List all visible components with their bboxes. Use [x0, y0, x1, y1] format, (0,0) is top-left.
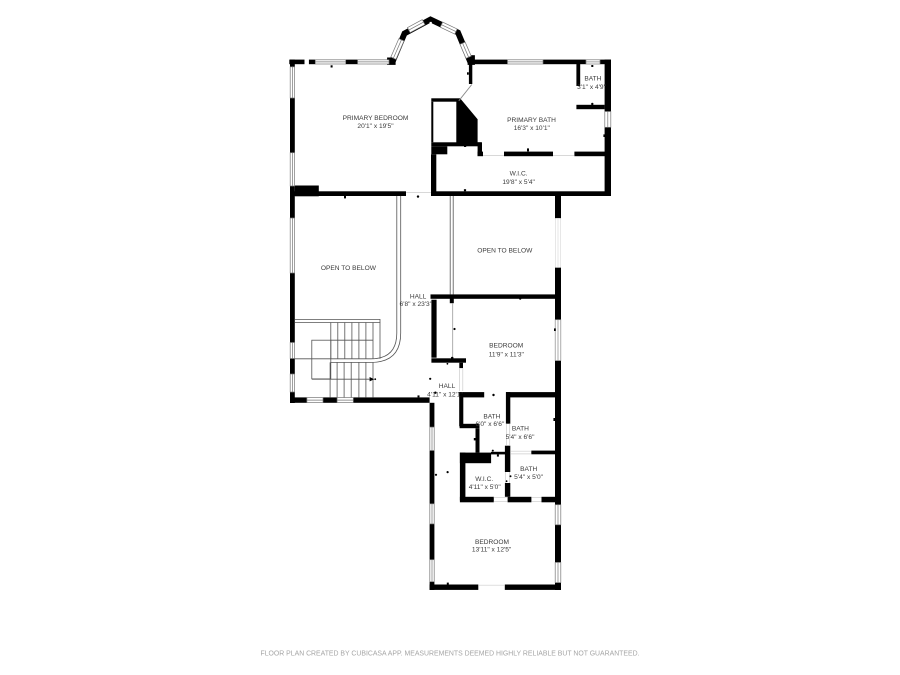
svg-text:6'8" x 23'3": 6'8" x 23'3" [400, 301, 433, 308]
svg-text:20'1" x 19'5": 20'1" x 19'5" [357, 123, 394, 130]
svg-text:PRIMARY BEDROOM: PRIMARY BEDROOM [343, 115, 409, 122]
svg-text:19'8" x 5'4": 19'8" x 5'4" [502, 179, 535, 186]
svg-text:4'11" x 5'0": 4'11" x 5'0" [469, 484, 502, 491]
svg-text:OPEN TO BELOW: OPEN TO BELOW [321, 265, 377, 272]
svg-text:HALL: HALL [410, 293, 427, 300]
svg-text:FLOOR PLAN CREATED BY CUBICASA: FLOOR PLAN CREATED BY CUBICASA APP. MEAS… [261, 650, 640, 657]
svg-text:BEDROOM: BEDROOM [475, 539, 509, 546]
svg-text:W.I.C.: W.I.C. [475, 476, 493, 483]
svg-text:5'4" x 5'0": 5'4" x 5'0" [514, 474, 543, 481]
svg-text:13'11" x 12'5": 13'11" x 12'5" [472, 547, 512, 554]
svg-text:16'3" x 10'1": 16'3" x 10'1" [514, 125, 551, 132]
svg-text:3'1" x 4'9": 3'1" x 4'9" [577, 84, 606, 91]
svg-text:OPEN TO BELOW: OPEN TO BELOW [477, 247, 533, 254]
svg-text:W.I.C.: W.I.C. [510, 170, 528, 177]
svg-text:4'11" x 12'1": 4'11" x 12'1" [427, 392, 463, 399]
svg-text:BATH: BATH [520, 466, 537, 473]
svg-text:5'4" x 6'6": 5'4" x 6'6" [506, 434, 535, 441]
svg-text:BATH: BATH [512, 426, 529, 433]
svg-text:BATH: BATH [584, 75, 601, 82]
svg-text:6'0" x 6'6": 6'0" x 6'6" [475, 421, 504, 428]
svg-text:PRIMARY BATH: PRIMARY BATH [507, 117, 556, 124]
svg-text:HALL: HALL [439, 383, 456, 390]
svg-text:11'9" x 11'3": 11'9" x 11'3" [489, 351, 525, 358]
svg-text:BEDROOM: BEDROOM [489, 343, 523, 350]
svg-text:BATH: BATH [483, 413, 500, 420]
